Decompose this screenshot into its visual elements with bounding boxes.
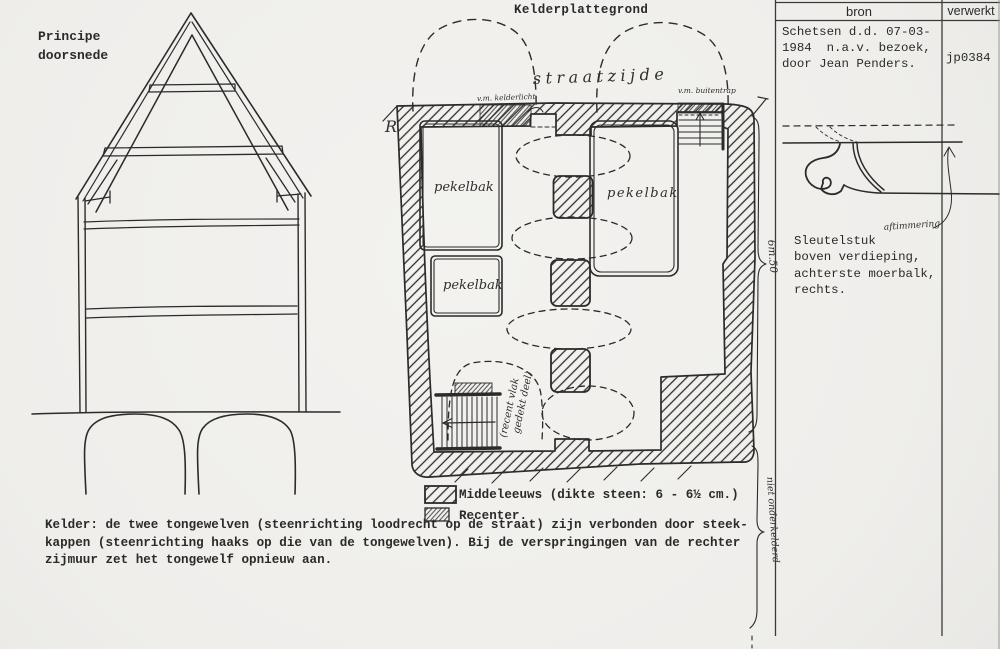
brine-tub-label-1: pekelbak [434, 180, 494, 195]
scanned-sketch-sheet: R straatzijde v.m. kelderlicht v.m. buit… [0, 0, 1000, 649]
info-panel-rules [775, 0, 1000, 649]
sleutelstuk-sketch: aftimmering [783, 125, 999, 233]
vault-piers [551, 176, 593, 392]
vaults-cross-section [85, 414, 296, 494]
column-header-bron: bron [776, 4, 942, 19]
dimension-label: 6m.50 [765, 239, 779, 273]
recent-infill-cellar-light [480, 105, 531, 126]
street-side-label: straatzijde [532, 64, 668, 88]
brine-tub-label-2: pekelbak [443, 278, 503, 293]
not-cellared-label: niet onderkelderd [764, 476, 781, 563]
source-text: Schetsen d.d. 07-03- 1984 n.a.v. bezoek,… [782, 25, 931, 72]
sketch-caption: Sleutelstuk boven verdieping, achterste … [794, 233, 935, 298]
legend-label-medieval: Middeleeuws (dikte steen: 6 - 6½ cm.) [459, 488, 739, 502]
processed-code: jp0384 [946, 51, 991, 65]
former-outside-stair [678, 103, 723, 149]
cross-section-drawing [32, 13, 340, 494]
aftimmering-label: aftimmering [884, 219, 941, 233]
recent-infill-stair [455, 383, 492, 394]
cross-section-title: Principe doorsnede [38, 27, 108, 65]
legend-swatches [425, 486, 456, 521]
corner-letter-label: R [384, 117, 397, 136]
brine-tub-label-3: pekelbak [607, 186, 679, 201]
plan-title: Kelderplattegrond [514, 3, 648, 17]
caption-text: Kelder: de twee tongewelven (steenrichti… [45, 517, 748, 570]
former-cellar-light-label: v.m. kelderlicht [477, 92, 537, 103]
column-header-verwerkt: verwerkt [942, 4, 1000, 18]
cellar-staircase [436, 383, 500, 449]
legend-swatch-medieval [425, 486, 456, 503]
former-outside-stair-label: v.m. buitentrap [678, 86, 736, 95]
